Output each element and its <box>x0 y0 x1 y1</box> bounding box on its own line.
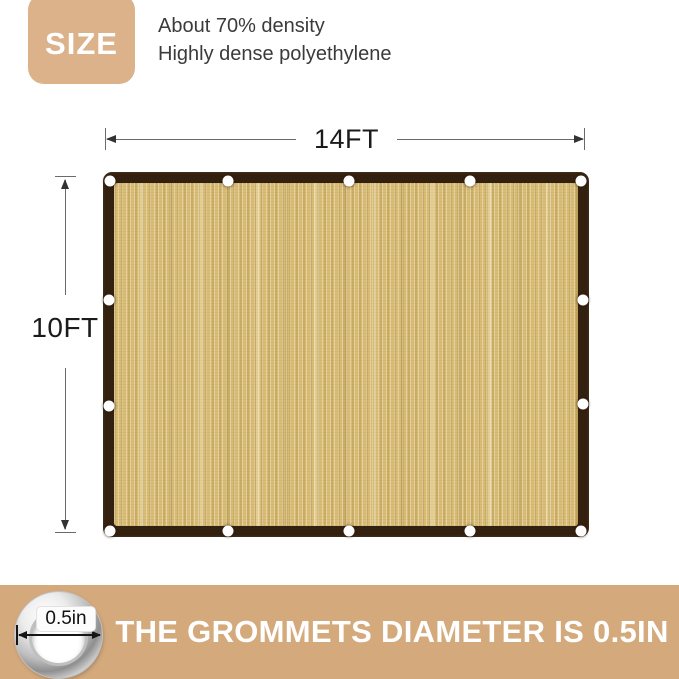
size-badge: SIZE <box>28 0 135 84</box>
grommet-icon <box>465 526 476 537</box>
size-badge-label: SIZE <box>45 26 118 62</box>
grommet-closeup-icon: 0.5in <box>14 591 103 679</box>
grommet-icon <box>223 176 234 187</box>
grommet-icon <box>104 401 115 412</box>
product-description: About 70% density Highly dense polyethyl… <box>158 12 392 68</box>
grommet-diameter-arrow <box>19 634 100 636</box>
shade-cloth <box>103 172 589 537</box>
up-arrowhead-icon <box>61 179 69 189</box>
width-dimension-line-right <box>397 139 583 140</box>
grommet-icon <box>104 295 115 306</box>
height-dimension-label: 10FT <box>25 312 105 344</box>
down-arrowhead-icon <box>61 520 69 530</box>
left-arrowhead-icon <box>106 135 116 143</box>
height-dimension-top-tick <box>55 176 76 177</box>
grommet-icon <box>223 526 234 537</box>
grommet-icon <box>344 176 355 187</box>
height-dimension-line-top <box>65 180 66 295</box>
height-dimension-bottom-tick <box>55 532 76 533</box>
grommet-icon <box>105 176 116 187</box>
grommet-icon <box>576 176 587 187</box>
description-line-2: Highly dense polyethylene <box>158 40 392 68</box>
right-arrowhead-icon <box>92 631 101 639</box>
shade-cloth-fabric <box>114 183 578 526</box>
description-line-1: About 70% density <box>158 12 392 40</box>
product-infographic: SIZE About 70% density Highly dense poly… <box>0 0 679 679</box>
grommet-icon <box>578 399 589 410</box>
grommet-icon <box>465 176 476 187</box>
grommet-icon <box>578 295 589 306</box>
width-dimension-label: 14FT <box>296 124 397 155</box>
width-dimension-line-left <box>107 139 296 140</box>
width-dimension-right-tick <box>584 128 585 150</box>
grommet-icon <box>105 526 116 537</box>
height-dimension-line-bottom <box>65 368 66 529</box>
grommet-icon <box>344 526 355 537</box>
grommet-icon <box>576 526 587 537</box>
left-arrowhead-icon <box>18 631 27 639</box>
right-arrowhead-icon <box>574 135 584 143</box>
grommet-diameter-label: 0.5in <box>36 606 96 632</box>
banner-text: THE GROMMETS DIAMETER IS 0.5IN <box>112 585 672 679</box>
